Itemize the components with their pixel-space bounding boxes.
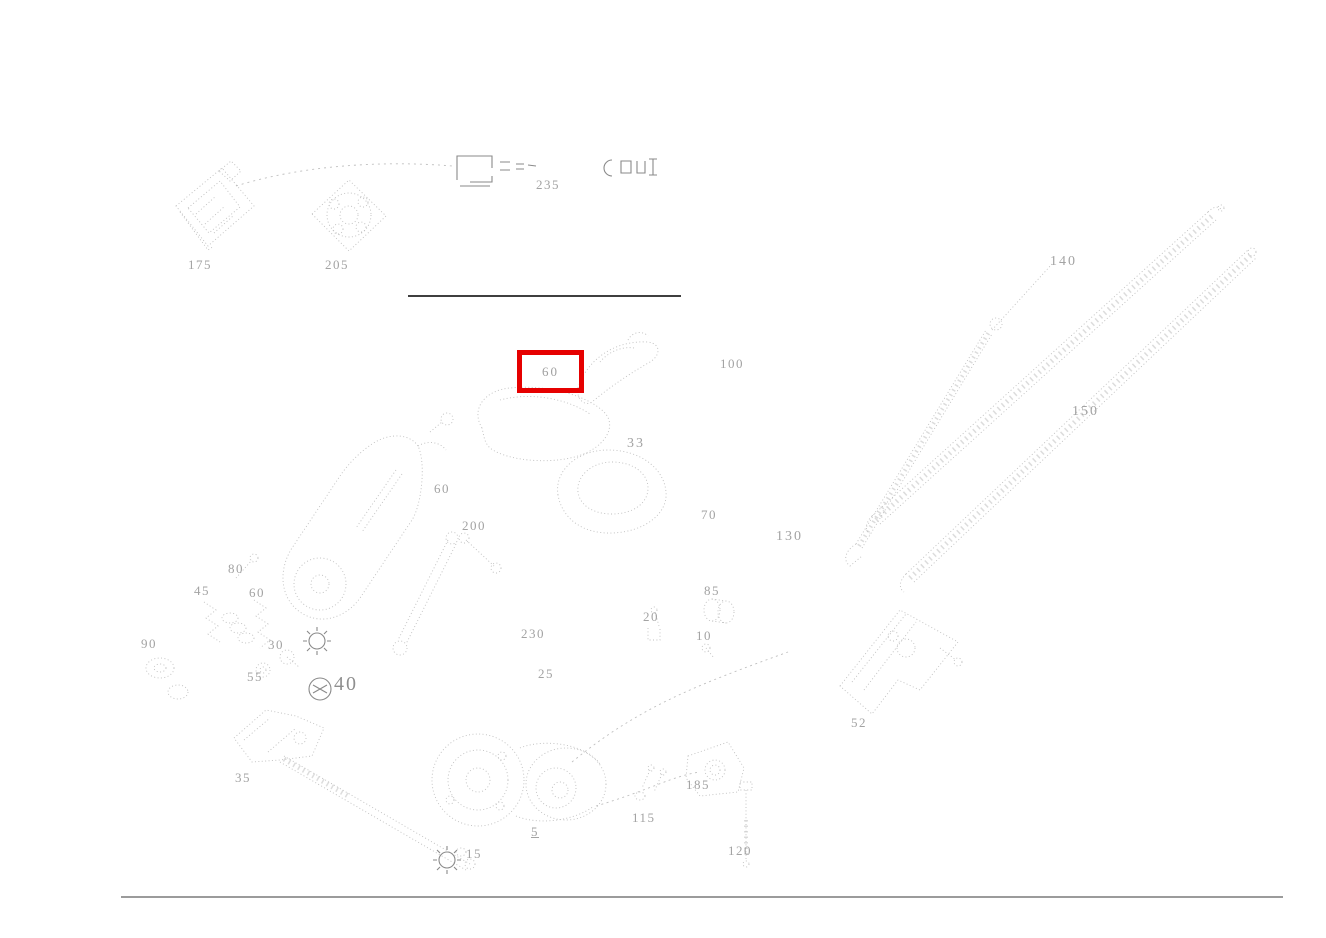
part-number-callout[interactable]: 120 (728, 843, 752, 859)
part-number-callout[interactable]: 30 (268, 637, 284, 653)
bottom-rule-line (121, 896, 1283, 898)
part-number-callout[interactable]: 20 (643, 609, 659, 625)
part-number-callout[interactable]: 45 (194, 583, 210, 599)
part-number-callout[interactable]: 55 (247, 669, 263, 685)
part-number-callout[interactable]: 70 (701, 507, 717, 523)
part-number-callout[interactable]: 230 (521, 626, 545, 642)
part-number-callout[interactable]: 33 (627, 436, 645, 452)
part-number-callout[interactable]: 40 (334, 673, 358, 696)
part-number-callout[interactable]: 130 (776, 529, 803, 545)
part-number-callout[interactable]: 90 (141, 636, 157, 652)
part-number-callout[interactable]: 80 (228, 561, 244, 577)
part-number-callout[interactable]: 60 (249, 585, 265, 601)
highlighted-part-number: 60 (542, 364, 559, 380)
part-number-callout[interactable]: 10 (696, 628, 712, 644)
part-number-callout[interactable]: 185 (686, 777, 710, 793)
part-number-callout[interactable]: 235 (536, 177, 560, 193)
part-number-callout[interactable]: 175 (188, 257, 212, 273)
part-number-callout[interactable]: 60 (434, 481, 450, 497)
top-separator-line (408, 295, 681, 297)
part-number-callout[interactable]: 200 (462, 518, 486, 534)
part-number-callout[interactable]: 5 (531, 824, 539, 840)
exploded-view-drawing (0, 0, 1326, 938)
part-number-callout[interactable]: 205 (325, 257, 349, 273)
part-number-callout[interactable]: 100 (720, 356, 744, 372)
part-number-callout[interactable]: 15 (466, 846, 482, 862)
part-number-callout[interactable]: 150 (1072, 404, 1099, 420)
parts-diagram-page: 60 1752052351401501003360200701308045609… (0, 0, 1326, 938)
part-number-callout[interactable]: 85 (704, 583, 720, 599)
part-number-callout[interactable]: 115 (632, 810, 656, 826)
part-number-callout[interactable]: 25 (538, 666, 554, 682)
part-number-callout[interactable]: 52 (851, 715, 867, 731)
highlighted-part-box[interactable]: 60 (517, 350, 584, 393)
part-number-callout[interactable]: 35 (235, 770, 251, 786)
part-number-callout[interactable]: 140 (1050, 254, 1077, 270)
